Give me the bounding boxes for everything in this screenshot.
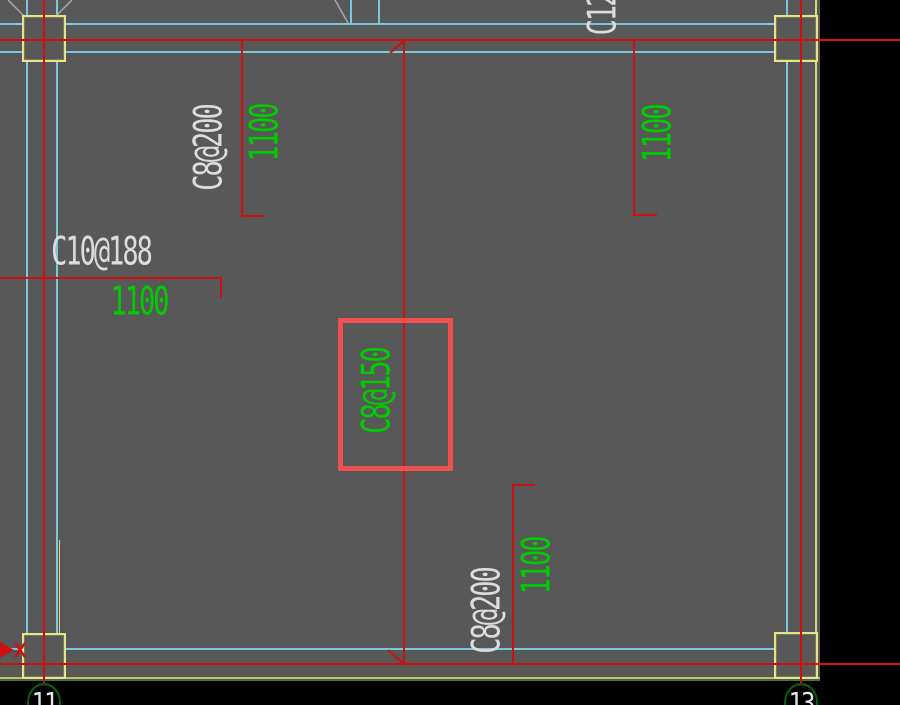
- dim-leader-bottom: [512, 484, 514, 663]
- rebar-label-bottom[interactable]: C8@200: [467, 568, 506, 654]
- beam-edge-line: [350, 0, 352, 23]
- grid-line-11: [43, 0, 45, 683]
- rebar-label-mid-left[interactable]: C10@188: [51, 232, 151, 271]
- grid-line-13: [800, 0, 802, 683]
- slab-outline-line: [815, 0, 817, 677]
- beam-edge-line: [378, 0, 380, 23]
- slab-edge-line: [26, 0, 28, 677]
- dim-leader-tick: [512, 484, 535, 486]
- slab-edge-line: [0, 23, 817, 25]
- dim-leader-tick: [241, 215, 264, 217]
- dim-leader-tick: [633, 214, 657, 216]
- grid-bubble-11[interactable]: 11: [27, 683, 61, 705]
- dim-label-mid-left[interactable]: 1100: [110, 282, 167, 321]
- slab-edge-line: [0, 648, 817, 650]
- slab-outline-line: [59, 540, 60, 634]
- slab-edge-line: [0, 51, 817, 53]
- dim-leader-tick: [220, 277, 222, 298]
- grid-line-horizontal-bottom: [0, 663, 900, 665]
- dim-label-top-right[interactable]: 1100: [638, 105, 677, 162]
- highlight-selection-box[interactable]: [338, 318, 453, 471]
- slab-edge-line: [56, 0, 58, 677]
- dim-label-top-left[interactable]: 1100: [245, 104, 284, 161]
- grid-line-horizontal-top: [0, 39, 900, 41]
- rebar-label-top-left[interactable]: C8@200: [189, 105, 228, 191]
- rebar-label-top-right[interactable]: C12: [583, 0, 622, 35]
- slab-outline-shadow-line: [0, 680, 820, 681]
- column-bottom-right: [774, 632, 818, 679]
- slab-edge-line: [786, 0, 788, 677]
- dim-label-bottom[interactable]: 1100: [517, 537, 556, 594]
- grid-bubble-13[interactable]: 13: [784, 683, 818, 705]
- cad-canvas[interactable]: C8@200 1100 C12 1100 C10@188 1100 C8@150…: [0, 0, 900, 705]
